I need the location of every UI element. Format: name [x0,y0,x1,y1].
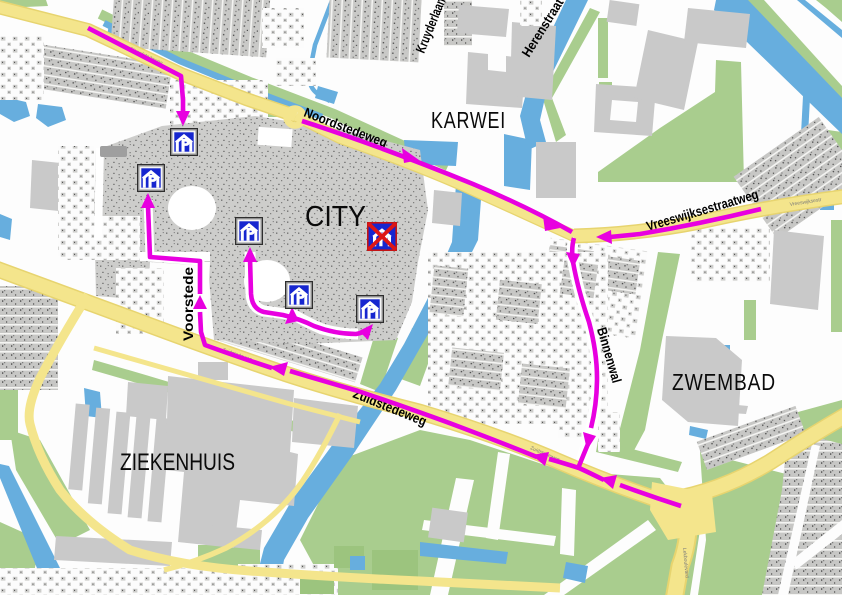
svg-text:Voorstede: Voorstede [181,266,196,341]
svg-text:KARWEI: KARWEI [431,107,506,133]
svg-text:CITY: CITY [305,201,366,233]
svg-text:ZWEMBAD: ZWEMBAD [672,369,776,395]
svg-text:ZIEKENHUIS: ZIEKENHUIS [120,449,235,476]
